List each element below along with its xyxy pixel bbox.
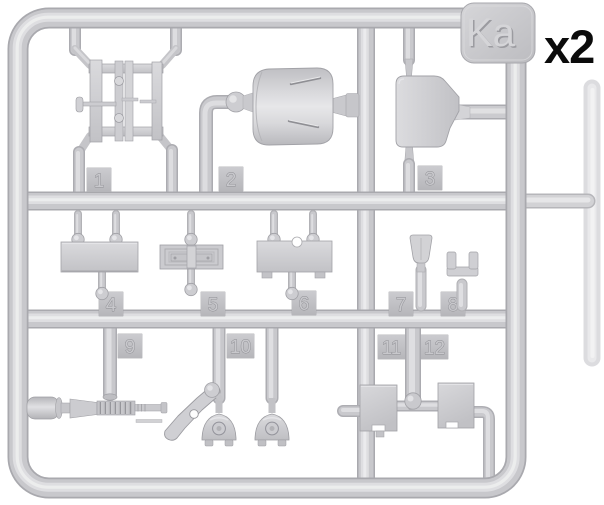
sprue-ka-diagram: 1 2 3 4 5 6 7 8 9 10 11 12 — [0, 0, 604, 505]
svg-text:10: 10 — [230, 337, 251, 358]
svg-text:1: 1 — [94, 171, 105, 192]
part-tag-1: 1 — [87, 168, 111, 192]
part-tag-11: 11 — [378, 335, 405, 359]
part-tag-9: 9 — [118, 334, 142, 358]
part-9-gun-assembly — [27, 383, 220, 441]
part-11-box — [360, 385, 397, 437]
svg-text:7: 7 — [396, 295, 407, 316]
sprue-label-tab: Ka Ka — [461, 3, 535, 63]
svg-text:9: 9 — [125, 337, 136, 358]
part-2-drum — [253, 68, 333, 145]
svg-text:5: 5 — [208, 295, 219, 316]
horizontal-runner-top — [13, 200, 517, 201]
part-3-angular-plate — [396, 76, 459, 147]
svg-text:11: 11 — [382, 338, 402, 359]
part-tag-5: 5 — [201, 292, 225, 316]
runner-part9 — [103, 319, 117, 400]
part-tag-10: 10 — [227, 334, 254, 358]
model-kit-sprue-sheet: 1 2 3 4 5 6 7 8 9 10 11 12 — [0, 0, 604, 505]
part-6-notched-box — [257, 237, 332, 278]
sprue-label: Ka — [466, 11, 516, 55]
runner-part10 — [218, 319, 272, 413]
svg-text:3: 3 — [425, 169, 436, 190]
part-1-frame-assembly — [76, 60, 163, 142]
part-12-box — [438, 383, 474, 428]
svg-text:4: 4 — [106, 295, 117, 316]
quantity-label: x2 — [544, 20, 594, 73]
part-tag-3: 3 — [418, 166, 442, 190]
svg-text:12: 12 — [424, 338, 445, 359]
svg-text:2: 2 — [226, 170, 237, 191]
part-tag-12: 12 — [421, 335, 448, 359]
part-tag-7: 7 — [389, 292, 413, 316]
part-10-dome-caps — [202, 414, 289, 446]
part-5-hatch — [160, 245, 223, 269]
horizontal-runner-bottom — [13, 318, 517, 319]
part-4-box — [61, 242, 138, 272]
part-tag-2: 2 — [219, 167, 243, 191]
svg-text:6: 6 — [299, 294, 310, 315]
